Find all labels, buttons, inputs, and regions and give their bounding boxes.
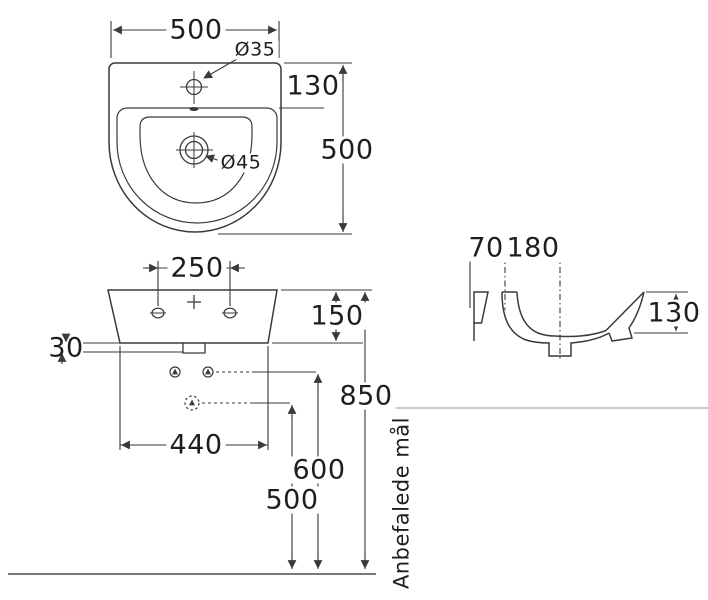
dim-rim-height: 850: [336, 383, 395, 410]
dim-tap-spacing: 250: [167, 255, 226, 282]
note-recommended-dimensions: Anbefalede mål: [392, 417, 413, 589]
dim-top-width: 500: [166, 17, 225, 44]
dim-drain-height: 600: [289, 457, 348, 484]
side-view-outline: [474, 292, 644, 356]
front-view-outline: [108, 290, 277, 353]
dim-bowl-depth: 130: [644, 300, 703, 327]
dim-tap-hole-diameter: Ø35: [232, 41, 279, 60]
front-view-tap-holes: [150, 295, 238, 318]
top-view-overflow-slot: [190, 107, 199, 111]
dim-top-depth: 500: [317, 137, 376, 164]
top-view-tap-hole: [180, 71, 208, 104]
dim-back-to-fixing: 70: [465, 235, 506, 262]
dim-fixing-width: 440: [166, 432, 225, 459]
dim-rim-to-bowl: 130: [286, 73, 339, 100]
dim-lip: 30: [48, 335, 83, 362]
dim-trap-height: 500: [262, 487, 321, 514]
dim-drain-diameter: Ø45: [218, 154, 265, 173]
top-view-drain: [176, 132, 213, 168]
dim-fixing-to-drain: 180: [503, 235, 562, 262]
dim-body-height: 150: [307, 303, 366, 330]
front-view-fixing-bolts: [170, 367, 213, 410]
washbasin-dimension-drawing: 500 Ø35 130 500 Ø45 250 150 30 440 850 6…: [0, 0, 708, 600]
top-view-outline: [109, 63, 281, 232]
